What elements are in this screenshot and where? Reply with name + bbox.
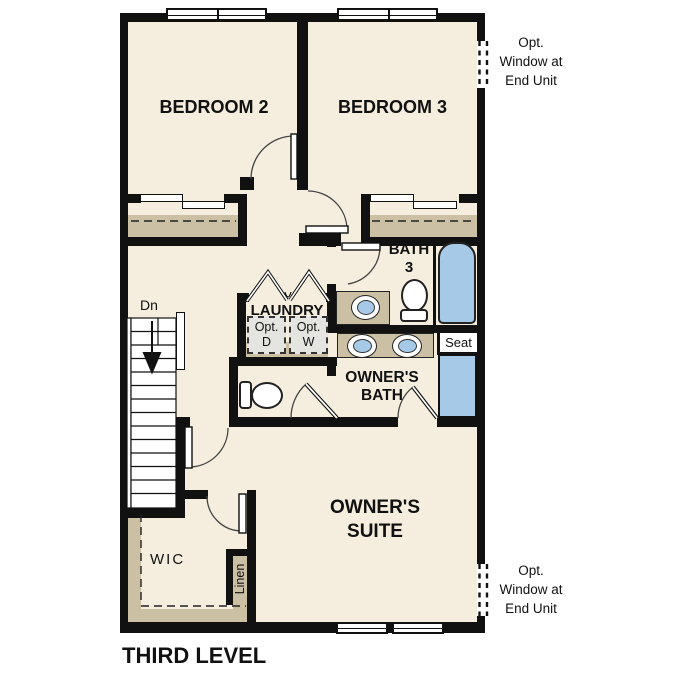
owners-suite-label-line2: SUITE xyxy=(300,520,450,544)
opt-washer-label-line2: W xyxy=(291,335,326,350)
bedroom2-closet-shelf xyxy=(128,215,238,237)
opt-window-top-note-line1: Opt. xyxy=(490,33,572,52)
wic-label: WIC xyxy=(150,551,225,568)
closet3-bypass-door xyxy=(413,201,457,209)
opt-dryer-label-line1: Opt. xyxy=(249,320,284,335)
opt-window-top-note: Opt. Window at End Unit xyxy=(490,33,572,90)
shower-seat-label: Seat xyxy=(440,335,477,350)
bath3-label-line1: BATH xyxy=(386,241,432,259)
bath3-sink-bowl xyxy=(357,300,375,315)
wic-shelf-bottom xyxy=(128,609,247,622)
opt-dryer-label-line2: D xyxy=(249,335,284,350)
wall-exterior-left xyxy=(120,13,128,633)
owners-bath-label: OWNER'S BATH xyxy=(337,369,427,405)
bath3-toilet-tank xyxy=(400,309,428,322)
opt-window-bottom-note: Opt. Window at End Unit xyxy=(490,561,572,618)
wall-stairs-right xyxy=(176,417,185,518)
wall-laundry-bottom xyxy=(229,357,337,366)
wall-bath3-left-upper xyxy=(327,235,336,247)
wall-exterior-right xyxy=(477,13,485,633)
wall-bedroom2-door-stub xyxy=(240,177,254,190)
wic-shelf-left xyxy=(128,512,141,622)
linen-label: Linen xyxy=(233,544,247,614)
bedroom2-label: BEDROOM 2 xyxy=(128,97,300,118)
opt-window-bottom-note-line2: Window at xyxy=(490,580,572,599)
wall-closet2-stub-right xyxy=(224,194,238,203)
opt-washer-label-line1: Opt. xyxy=(291,320,326,335)
bathtub xyxy=(438,242,476,324)
opt-window-top-note-line2: Window at xyxy=(490,52,572,71)
suite-window-2 xyxy=(392,622,444,634)
wall-wc-right-stub xyxy=(327,366,336,376)
wc-toilet-bowl xyxy=(251,382,283,409)
suite-window-1 xyxy=(336,622,388,634)
window-mullion xyxy=(217,10,219,19)
closet2-bypass-door xyxy=(140,194,183,202)
window-mullion xyxy=(388,10,390,19)
bath3-label: BATH 3 xyxy=(386,241,432,277)
bath3-label-line2: 3 xyxy=(386,259,432,277)
wall-linen-left xyxy=(226,549,233,605)
bedroom3-window xyxy=(337,8,438,21)
owners-sink-2-bowl xyxy=(398,339,417,353)
wall-wic-door-stub xyxy=(184,490,208,499)
wall-shower-bottom xyxy=(437,417,477,427)
floorplan-canvas: Opt. D Opt. W BEDROOM 2 BEDROOM 3 BATH 3… xyxy=(0,0,687,687)
wall-suite-top xyxy=(229,417,398,427)
wall-stairs-bottom xyxy=(120,508,184,518)
bedroom3-label: BEDROOM 3 xyxy=(308,97,477,118)
window-mullion xyxy=(394,628,442,629)
shower xyxy=(438,354,477,418)
wall-closet2-right xyxy=(238,194,247,246)
opt-washer-box: Opt. W xyxy=(289,316,328,354)
plan-title: THIRD LEVEL xyxy=(122,643,266,669)
opt-dryer-box: Opt. D xyxy=(247,316,286,354)
wall-bath-divider xyxy=(327,325,477,333)
wall-wic-right xyxy=(247,490,256,622)
wall-closet3-stub-right xyxy=(459,194,477,203)
opt-window-top-note-line3: End Unit xyxy=(490,71,572,90)
owners-suite-label-line1: OWNER'S xyxy=(300,496,450,520)
bath3-toilet-bowl xyxy=(401,279,428,312)
bedroom2-window xyxy=(166,8,267,21)
wall-closet2-bottom xyxy=(120,237,247,246)
stairs-dn-label: Dn xyxy=(140,297,158,313)
opt-window-top-knockout xyxy=(477,41,489,88)
wall-laundry-stub-left xyxy=(237,293,249,302)
bedroom3-closet-shelf xyxy=(370,215,477,237)
owners-sink-1-bowl xyxy=(353,339,372,353)
wall-tub-thin xyxy=(433,241,436,327)
window-mullion xyxy=(338,628,386,629)
owners-suite-label: OWNER'S SUITE xyxy=(300,496,450,544)
wall-laundry-stub-right xyxy=(326,293,336,302)
closet2-bypass-door xyxy=(182,201,225,209)
owners-bath-label-line2: BATH xyxy=(337,387,427,405)
opt-window-bottom-knockout xyxy=(477,564,489,616)
closet3-bypass-door xyxy=(370,194,414,202)
opt-window-bottom-note-line1: Opt. xyxy=(490,561,572,580)
laundry-label: LAUNDRY xyxy=(242,302,332,319)
opt-window-bottom-note-line3: End Unit xyxy=(490,599,572,618)
owners-bath-label-line1: OWNER'S xyxy=(337,369,427,387)
stairs-railing xyxy=(176,312,185,370)
